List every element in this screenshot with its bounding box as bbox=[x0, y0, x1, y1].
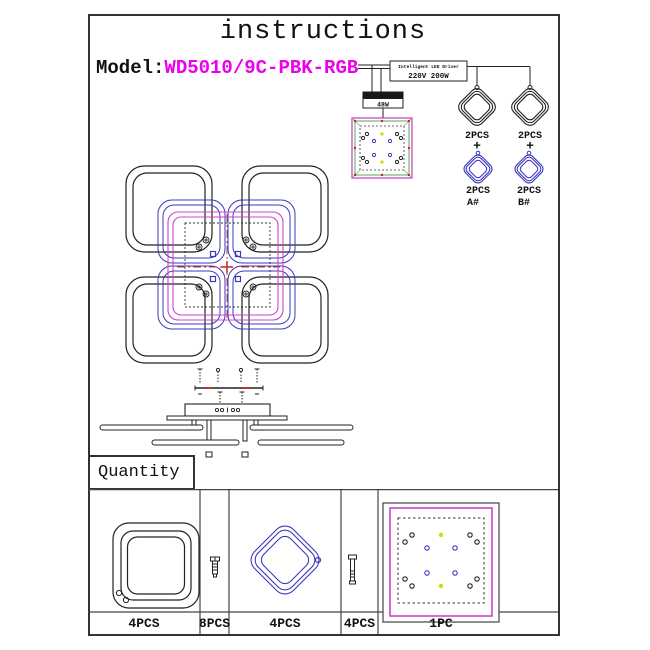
lamp-top-view bbox=[105, 158, 337, 376]
qty-label: 2PCS bbox=[517, 186, 541, 197]
part-qty-label: 1PC bbox=[429, 616, 453, 631]
model-label: Model: bbox=[96, 57, 164, 79]
part-diamond-ring bbox=[246, 521, 324, 599]
mains-wires bbox=[358, 65, 390, 92]
part-qty-label: 4PCS bbox=[128, 616, 159, 631]
black-diamond-ring-icon bbox=[456, 86, 498, 128]
mounting-bar bbox=[195, 386, 263, 391]
small-driver-title: Intelligent LED Driver bbox=[362, 94, 404, 98]
blue-diamond-ring-icon bbox=[462, 153, 495, 186]
part-qty-label: 4PCS bbox=[269, 616, 300, 631]
support-posts bbox=[192, 420, 258, 441]
part-qty-label: 4PCS bbox=[344, 616, 375, 631]
main-driver-specs: 220V 200W bbox=[408, 73, 449, 81]
wiring-panel-icon bbox=[352, 118, 412, 178]
lamp-arms bbox=[100, 425, 353, 445]
small-driver-power: 48W bbox=[377, 102, 389, 109]
part-square-ring bbox=[113, 523, 199, 608]
wiring-diagram: Intelligent LED Driver 220V 200W Intelli… bbox=[340, 55, 560, 210]
ring-group-a: 2PCS + 2PCS A# bbox=[456, 86, 498, 209]
end-caps bbox=[206, 452, 248, 457]
part-center-panel bbox=[383, 503, 499, 622]
quantity-header: Quantity bbox=[88, 455, 195, 490]
main-driver-title: Intelligent LED Driver bbox=[398, 64, 459, 70]
part-long-screw bbox=[349, 555, 357, 584]
main-driver-box: Intelligent LED Driver 220V 200W bbox=[390, 61, 467, 81]
part-short-screw bbox=[211, 557, 220, 577]
ring-group-b: 2PCS + 2PCS B# bbox=[509, 86, 551, 209]
instruction-sheet: instructions Model:WD5010/9C-PBK-RGB Int… bbox=[0, 0, 650, 650]
canopy-screws bbox=[198, 392, 259, 403]
mounting-side-view bbox=[88, 363, 363, 462]
qty-label: 2PCS bbox=[466, 186, 490, 197]
ceiling-canopy bbox=[167, 404, 287, 420]
parts-table: 4PCS 8PCS 4PCS bbox=[88, 489, 558, 635]
model-value: WD5010/9C-PBK-RGB bbox=[164, 57, 358, 79]
output-wires bbox=[467, 67, 532, 90]
variant-label: A# bbox=[467, 198, 479, 209]
black-diamond-ring-icon bbox=[509, 86, 551, 128]
expansion-screws bbox=[198, 368, 260, 383]
page-title: instructions bbox=[88, 17, 558, 47]
part-qty-label: 8PCS bbox=[199, 616, 230, 631]
blue-diamond-ring-icon bbox=[513, 153, 546, 186]
variant-label: B# bbox=[518, 198, 530, 209]
small-driver-box: Intelligent LED Driver 48W bbox=[362, 92, 404, 118]
model-line: Model:WD5010/9C-PBK-RGB bbox=[96, 57, 358, 79]
